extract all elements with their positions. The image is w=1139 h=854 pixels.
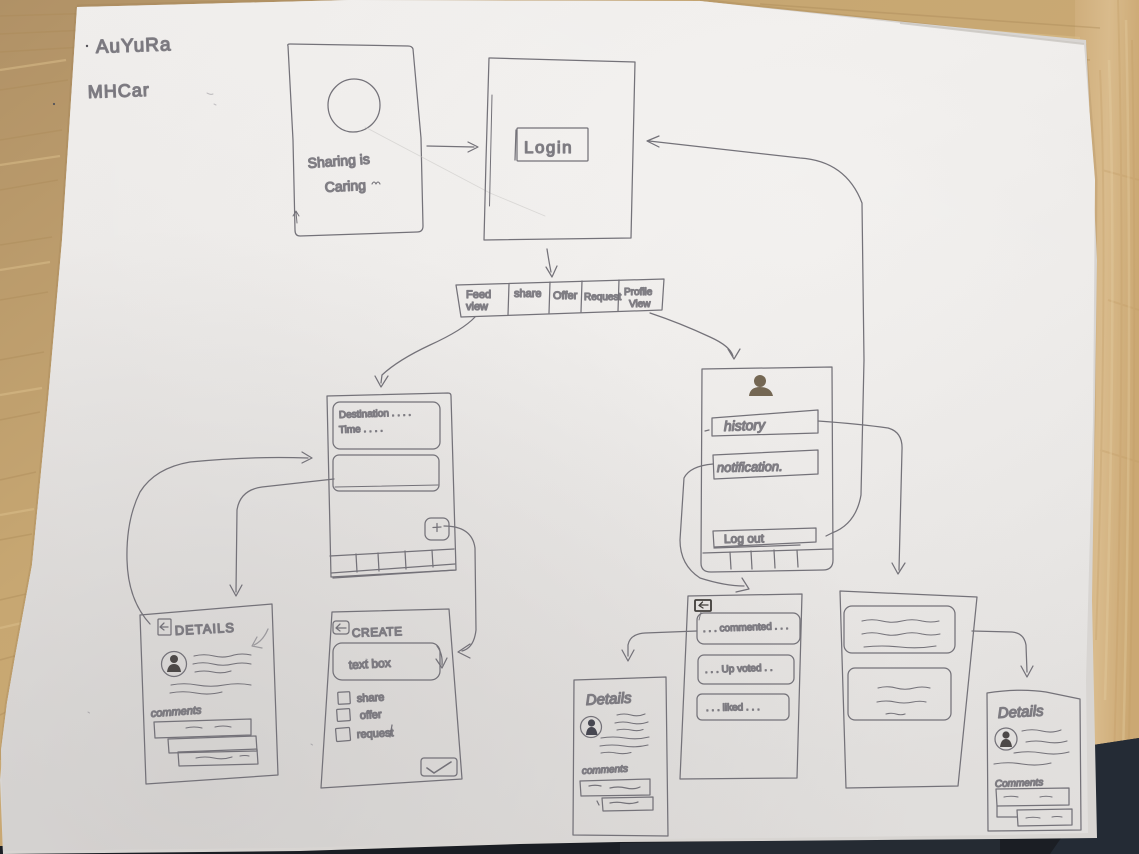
- svg-text:AuYuRa: AuYuRa: [95, 34, 171, 58]
- svg-text:Caring: Caring: [324, 177, 366, 195]
- svg-text:MHCar: MHCar: [87, 80, 150, 102]
- svg-text:view: view: [466, 301, 488, 313]
- svg-text:notification.: notification.: [717, 459, 783, 475]
- svg-text:Details: Details: [997, 703, 1044, 722]
- svg-text:CREATE: CREATE: [352, 624, 403, 640]
- svg-text:View: View: [629, 299, 651, 310]
- svg-text:Login: Login: [524, 138, 573, 157]
- svg-text:Time . . . .: Time . . . .: [339, 423, 383, 436]
- svg-text:Offer: Offer: [553, 290, 578, 302]
- svg-text:share: share: [357, 692, 385, 705]
- svg-text:Feed: Feed: [466, 289, 491, 301]
- svg-text:Log out: Log out: [724, 531, 765, 546]
- svg-text:offer: offer: [360, 709, 383, 722]
- svg-text:share: share: [514, 288, 542, 300]
- svg-text:Details: Details: [585, 690, 632, 709]
- svg-text:Request: Request: [584, 292, 621, 303]
- svg-text:text box: text box: [348, 656, 391, 672]
- svg-text:DETAILS: DETAILS: [174, 620, 235, 638]
- svg-text:. . . liked . . .: . . . liked . . .: [706, 702, 760, 714]
- svg-text:request: request: [357, 727, 394, 741]
- svg-text:Profile: Profile: [624, 287, 653, 298]
- svg-text:history: history: [724, 417, 767, 434]
